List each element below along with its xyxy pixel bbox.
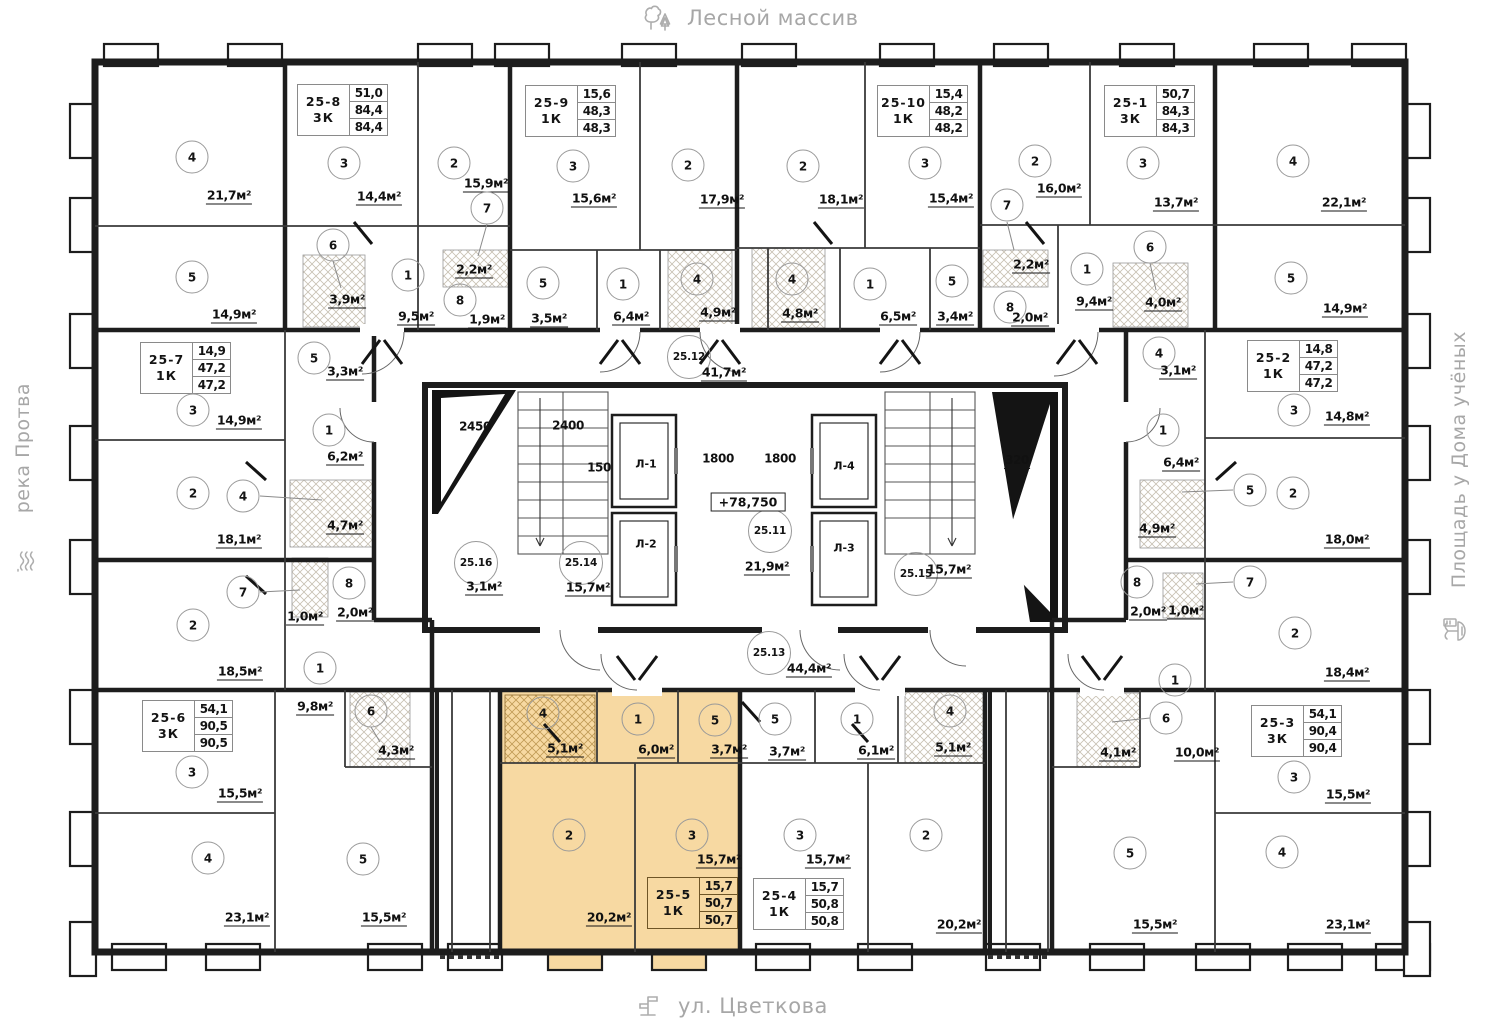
unit-info-box-25-9[interactable]: 25-91К15,648,348,3 <box>525 85 616 137</box>
unit-area-value: 84,4 <box>350 102 387 119</box>
room-area-label: 2,2м² <box>455 262 493 279</box>
room-number-circle: 1 <box>304 652 337 685</box>
unit-area-value: 50,7 <box>1157 86 1194 103</box>
unit-area-value: 50,7 <box>700 895 737 912</box>
elevator-label: Л-4 <box>833 460 854 473</box>
unit-id: 25-9 <box>534 95 569 111</box>
room-number-circle: 3 <box>676 819 709 852</box>
common-zone-circle: 25.14 <box>559 541 603 585</box>
room-number-circle: 1 <box>841 703 874 736</box>
room-area-label: 15,5м² <box>217 786 263 803</box>
room-number-circle: 5 <box>936 265 969 298</box>
unit-area-value: 47,2 <box>1300 358 1337 375</box>
room-area-label: 18,4м² <box>1324 665 1370 682</box>
room-number-circle: 2 <box>1019 145 1052 178</box>
room-number-circle: 2 <box>177 477 210 510</box>
unit-area-value: 50,8 <box>806 896 843 913</box>
room-area-label: 6,5м² <box>879 309 917 326</box>
unit-area-value: 48,2 <box>930 103 967 120</box>
unit-area-value: 84,3 <box>1157 120 1194 136</box>
room-number-circle: 4 <box>527 697 560 730</box>
unit-area-value: 90,5 <box>195 718 232 735</box>
unit-area-value: 14,8 <box>1300 341 1337 358</box>
unit-area-value: 51,0 <box>350 85 387 102</box>
room-area-label: 3,4м² <box>936 309 974 326</box>
unit-id: 25-6 <box>151 710 186 726</box>
unit-area-value: 47,2 <box>193 360 230 377</box>
common-zone-area-label: 41,7м² <box>701 365 747 382</box>
surrounding-right: Площадь у Дома учёных <box>1448 331 1470 592</box>
room-area-label: 21,7м² <box>206 188 252 205</box>
room-area-label: 14,9м² <box>211 307 257 324</box>
common-zone-area-label: 21,9м² <box>744 559 790 576</box>
room-number-circle: 4 <box>934 695 967 728</box>
room-area-label: 16,0м² <box>1036 181 1082 198</box>
room-area-label: 6,1м² <box>857 743 895 760</box>
room-area-label: 18,1м² <box>216 532 262 549</box>
room-number-circle: 1 <box>854 268 887 301</box>
unit-area-value: 15,7 <box>806 879 843 896</box>
room-number-circle: 7 <box>991 189 1024 222</box>
unit-area-value: 50,7 <box>700 912 737 928</box>
room-number-circle: 5 <box>1234 474 1267 507</box>
room-number-circle: 7 <box>1234 566 1267 599</box>
room-area-label: 15,4м² <box>928 191 974 208</box>
unit-id: 25-2 <box>1256 350 1291 366</box>
room-number-circle: 5 <box>699 704 732 737</box>
surrounding-right-label: Площадь у Дома учёных <box>1448 331 1470 588</box>
room-area-label: 1,0м² <box>1167 603 1205 620</box>
room-number-circle: 1 <box>392 259 425 292</box>
unit-info-box-25-10[interactable]: 25-101К15,448,248,2 <box>877 85 968 137</box>
room-number-circle: 8 <box>1121 566 1154 599</box>
room-area-label: 10,0м² <box>1174 745 1220 762</box>
room-area-label: 14,8м² <box>1324 409 1370 426</box>
room-number-circle: 4 <box>681 263 714 296</box>
room-area-label: 3,3м² <box>326 364 364 381</box>
room-number-circle: 1 <box>313 414 346 447</box>
room-number-circle: 4 <box>1266 836 1299 869</box>
unit-area-value: 54,1 <box>1304 706 1341 723</box>
room-number-circle: 3 <box>176 756 209 789</box>
room-number-circle: 3 <box>177 394 210 427</box>
surrounding-top-label: Лесной массив <box>687 6 859 30</box>
room-area-label: 2,0м² <box>336 605 374 622</box>
unit-area-value: 48,2 <box>930 120 967 136</box>
unit-info-box-25-1[interactable]: 25-13К50,784,384,3 <box>1104 85 1195 137</box>
common-zone-area-label: 15,7м² <box>565 580 611 597</box>
room-number-circle: 3 <box>909 147 942 180</box>
room-area-label: 22,1м² <box>1321 195 1367 212</box>
room-number-circle: 4 <box>176 141 209 174</box>
unit-info-box-25-8[interactable]: 25-83К51,084,484,4 <box>297 84 388 136</box>
unit-area-value: 14,9 <box>193 343 230 360</box>
room-number-circle: 5 <box>1275 262 1308 295</box>
unit-area-value: 15,7 <box>700 878 737 895</box>
room-number-circle: 4 <box>1277 145 1310 178</box>
room-number-circle: 2 <box>787 150 820 183</box>
unit-area-value: 90,4 <box>1304 723 1341 740</box>
unit-info-box-25-6[interactable]: 25-63К54,190,590,5 <box>142 700 233 752</box>
room-number-circle: 1 <box>622 703 655 736</box>
room-number-circle: 2 <box>1279 617 1312 650</box>
room-area-label: 6,4м² <box>1162 455 1200 472</box>
elevator-label: Л-1 <box>635 458 656 471</box>
room-area-label: 15,5м² <box>1132 917 1178 934</box>
unit-area-value: 47,2 <box>193 377 230 393</box>
room-area-label: 3,5м² <box>530 311 568 328</box>
room-area-label: 1,9м² <box>468 312 506 329</box>
room-area-label: 18,5м² <box>217 664 263 681</box>
unit-type: 3К <box>313 110 334 126</box>
unit-area-value: 50,8 <box>806 913 843 929</box>
room-area-label: 4,3м² <box>377 743 415 760</box>
room-number-circle: 1 <box>1159 664 1192 697</box>
room-area-label: 9,5м² <box>397 309 435 326</box>
unit-info-box-25-2[interactable]: 25-21К14,847,247,2 <box>1247 340 1338 392</box>
unit-area-value: 84,3 <box>1157 103 1194 120</box>
room-area-label: 3,1м² <box>1159 363 1197 380</box>
room-area-label: 4,1м² <box>1099 745 1137 762</box>
river-waves-icon <box>14 545 42 573</box>
room-number-circle: 5 <box>347 843 380 876</box>
room-area-label: 4,9м² <box>699 305 737 322</box>
unit-area-value: 48,3 <box>578 103 615 120</box>
room-area-label: 18,0м² <box>1324 532 1370 549</box>
elevator-label: Л-2 <box>635 538 656 551</box>
room-number-circle: 2 <box>910 819 943 852</box>
street-sign-icon <box>630 993 666 1019</box>
room-area-label: 3,7м² <box>768 744 806 761</box>
common-zone-area-label: 44,4м² <box>786 661 832 678</box>
room-number-circle: 3 <box>1127 147 1160 180</box>
unit-id: 25-7 <box>149 352 184 368</box>
unit-area-value: 47,2 <box>1300 375 1337 391</box>
room-number-circle: 6 <box>317 229 350 262</box>
room-area-label: 5,1м² <box>934 740 972 757</box>
room-area-label: 23,1м² <box>1325 917 1371 934</box>
room-number-circle: 2 <box>553 819 586 852</box>
room-number-circle: 5 <box>527 267 560 300</box>
room-number-circle: 4 <box>776 263 809 296</box>
room-area-label: 20,2м² <box>936 917 982 934</box>
room-area-label: 9,4м² <box>1075 294 1113 311</box>
unit-info-box-25-5[interactable]: 25-51К15,750,750,7 <box>647 877 738 929</box>
unit-info-box-25-7[interactable]: 25-71К14,947,247,2 <box>140 342 231 394</box>
room-number-circle: 7 <box>227 576 260 609</box>
room-number-circle: 6 <box>1150 702 1183 735</box>
room-number-circle: 2 <box>1277 477 1310 510</box>
unit-id: 25-10 <box>881 95 926 111</box>
room-number-circle: 1 <box>1071 253 1104 286</box>
room-area-label: 14,9м² <box>1322 301 1368 318</box>
fountain-icon <box>1438 614 1476 648</box>
unit-id: 25-4 <box>762 888 797 904</box>
unit-area-value: 54,1 <box>195 701 232 718</box>
room-number-circle: 7 <box>471 192 504 225</box>
room-number-circle: 3 <box>328 147 361 180</box>
room-number-circle: 1 <box>607 268 640 301</box>
unit-type: 1К <box>156 368 177 384</box>
room-number-circle: 8 <box>333 567 366 600</box>
unit-type: 1К <box>663 903 684 919</box>
unit-type: 1К <box>1263 366 1284 382</box>
common-zone-circle: 25.11 <box>748 509 792 553</box>
room-area-label: 20,2м² <box>586 910 632 927</box>
room-area-label: 1,0м² <box>286 609 324 626</box>
room-area-label: 15,6м² <box>571 191 617 208</box>
dimension-label: 1800 <box>701 452 735 467</box>
room-area-label: 2,0м² <box>1011 310 1049 327</box>
common-zone-circle: 25.13 <box>747 631 791 675</box>
unit-type: 1К <box>769 904 790 920</box>
unit-type: 3К <box>158 726 179 742</box>
room-area-label: 15,7м² <box>696 852 742 869</box>
unit-area-value: 90,4 <box>1304 740 1341 756</box>
unit-area-value: 15,6 <box>578 86 615 103</box>
room-number-circle: 4 <box>192 842 225 875</box>
elevator-label: Л-3 <box>833 542 854 555</box>
room-area-label: 18,1м² <box>818 192 864 209</box>
unit-type: 3К <box>1120 111 1141 127</box>
common-zone-area-label: 3,1м² <box>465 579 503 596</box>
unit-area-value: 90,5 <box>195 735 232 751</box>
room-area-label: 15,7м² <box>805 852 851 869</box>
room-number-circle: 1 <box>1147 414 1180 447</box>
room-area-label: 4,9м² <box>1138 521 1176 538</box>
room-number-circle: 5 <box>759 703 792 736</box>
room-area-label: 3,7м² <box>710 742 748 759</box>
unit-area-value: 84,4 <box>350 119 387 135</box>
surrounding-bottom-label: ул. Цветкова <box>678 994 828 1018</box>
room-area-label: 6,4м² <box>612 309 650 326</box>
floorplan-page: 25-83К51,084,484,4421,7м²314,4м²215,9м²7… <box>0 0 1500 1026</box>
room-number-circle: 3 <box>557 150 590 183</box>
room-number-circle: 4 <box>227 480 260 513</box>
unit-area-value: 15,4 <box>930 86 967 103</box>
dimension-label: 150 <box>586 461 612 476</box>
dimension-label: 2450 <box>458 420 492 435</box>
unit-info-box-25-4[interactable]: 25-41К15,750,850,8 <box>753 878 844 930</box>
unit-type: 3К <box>1267 731 1288 747</box>
room-area-label: 5,1м² <box>546 741 584 758</box>
dimension-label: 1800 <box>763 452 797 467</box>
room-number-circle: 5 <box>1114 837 1147 870</box>
room-area-label: 4,8м² <box>781 306 819 323</box>
room-number-circle: 3 <box>1278 761 1311 794</box>
unit-type: 1К <box>893 111 914 127</box>
dimension-label: 2400 <box>551 419 585 434</box>
unit-id: 25-5 <box>656 887 691 903</box>
trees-icon <box>641 3 675 33</box>
room-number-circle: 3 <box>1278 394 1311 427</box>
room-area-label: 14,4м² <box>356 189 402 206</box>
plan-labels: 25-83К51,084,484,4421,7м²314,4м²215,9м²7… <box>0 0 1500 1026</box>
room-area-label: 15,5м² <box>361 910 407 927</box>
room-number-circle: 2 <box>177 609 210 642</box>
room-number-circle: 6 <box>1134 231 1167 264</box>
surrounding-bottom: ул. Цветкова <box>630 993 828 1019</box>
room-area-label: 23,1м² <box>224 910 270 927</box>
surrounding-top: Лесной массив <box>641 3 859 33</box>
room-area-label: 17,9м² <box>699 192 745 209</box>
unit-id: 25-1 <box>1113 95 1148 111</box>
room-area-label: 14,9м² <box>216 413 262 430</box>
unit-info-box-25-3[interactable]: 25-33К54,190,490,4 <box>1251 705 1342 757</box>
room-area-label: 2,2м² <box>1012 257 1050 274</box>
dimension-label: 320 <box>1004 453 1030 469</box>
room-area-label: 3,9м² <box>328 292 366 309</box>
room-area-label: 2,0м² <box>1129 604 1167 621</box>
room-area-label: 15,5м² <box>1325 787 1371 804</box>
surrounding-left-label: река Протва <box>12 383 34 513</box>
room-area-label: 4,0м² <box>1144 295 1182 312</box>
room-area-label: 4,7м² <box>326 518 364 535</box>
room-area-label: 15,9м² <box>463 176 509 193</box>
room-number-circle: 6 <box>355 695 388 728</box>
room-area-label: 9,8м² <box>296 699 334 716</box>
room-number-circle: 3 <box>784 819 817 852</box>
room-area-label: 13,7м² <box>1153 195 1199 212</box>
common-zone-area-label: 15,7м² <box>926 562 972 579</box>
unit-area-value: 48,3 <box>578 120 615 136</box>
room-number-circle: 5 <box>176 261 209 294</box>
unit-id: 25-3 <box>1260 715 1295 731</box>
room-area-label: 6,0м² <box>637 742 675 759</box>
unit-id: 25-8 <box>306 94 341 110</box>
elevation-mark: +78,750 <box>711 493 786 512</box>
room-area-label: 6,2м² <box>326 449 364 466</box>
unit-type: 1К <box>541 111 562 127</box>
surrounding-left: река Протва <box>12 383 34 517</box>
room-number-circle: 2 <box>672 149 705 182</box>
